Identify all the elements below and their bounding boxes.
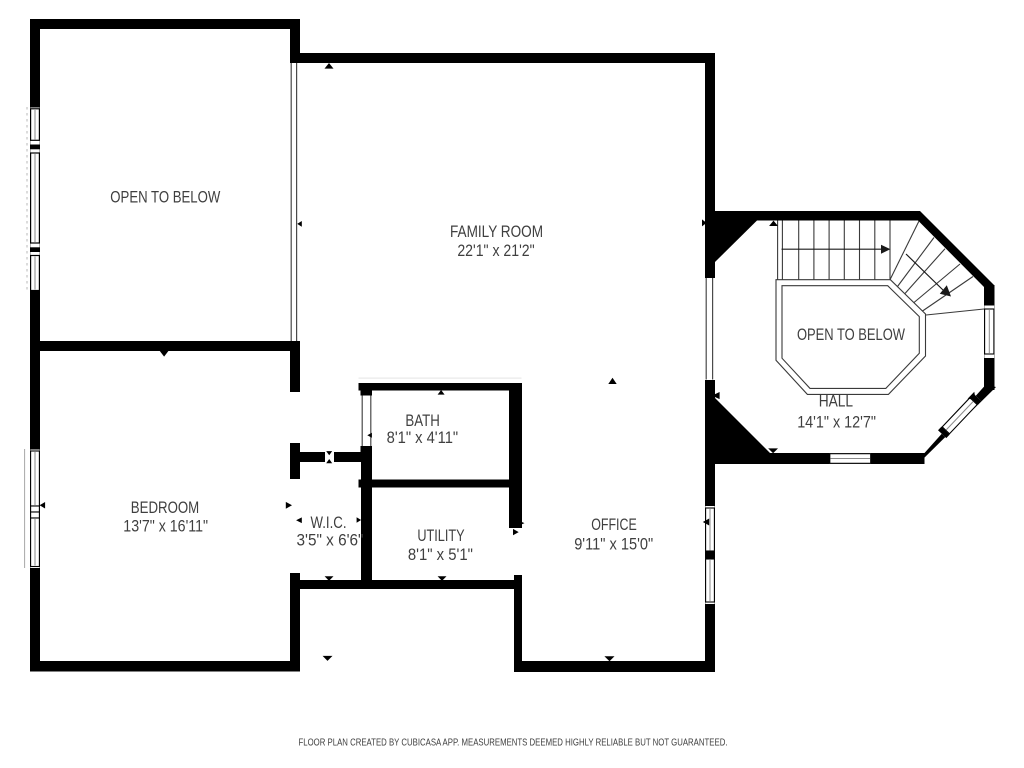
svg-text:3'5" x 6'6": 3'5" x 6'6" [297, 532, 364, 550]
svg-text:14'1" x 12'7": 14'1" x 12'7" [797, 413, 876, 431]
svg-text:FLOOR PLAN CREATED BY CUBICASA: FLOOR PLAN CREATED BY CUBICASA APP. MEAS… [299, 737, 728, 748]
svg-text:BEDROOM: BEDROOM [131, 499, 199, 517]
svg-text:22'1" x 21'2": 22'1" x 21'2" [457, 242, 535, 260]
svg-text:13'7" x 16'11": 13'7" x 16'11" [123, 517, 208, 535]
svg-text:OPEN TO BELOW: OPEN TO BELOW [797, 326, 906, 344]
svg-text:8'1" x 4'11": 8'1" x 4'11" [387, 429, 459, 447]
svg-text:HALL: HALL [819, 392, 853, 410]
svg-text:8'1" x 5'1": 8'1" x 5'1" [408, 546, 473, 564]
svg-text:W.I.C.: W.I.C. [311, 514, 347, 532]
svg-text:9'11" x 15'0": 9'11" x 15'0" [574, 536, 653, 554]
svg-text:FAMILY ROOM: FAMILY ROOM [450, 223, 543, 241]
svg-text:OPEN TO BELOW: OPEN TO BELOW [110, 189, 221, 207]
svg-text:UTILITY: UTILITY [417, 527, 464, 545]
svg-text:OFFICE: OFFICE [591, 516, 637, 534]
svg-text:BATH: BATH [405, 412, 439, 430]
